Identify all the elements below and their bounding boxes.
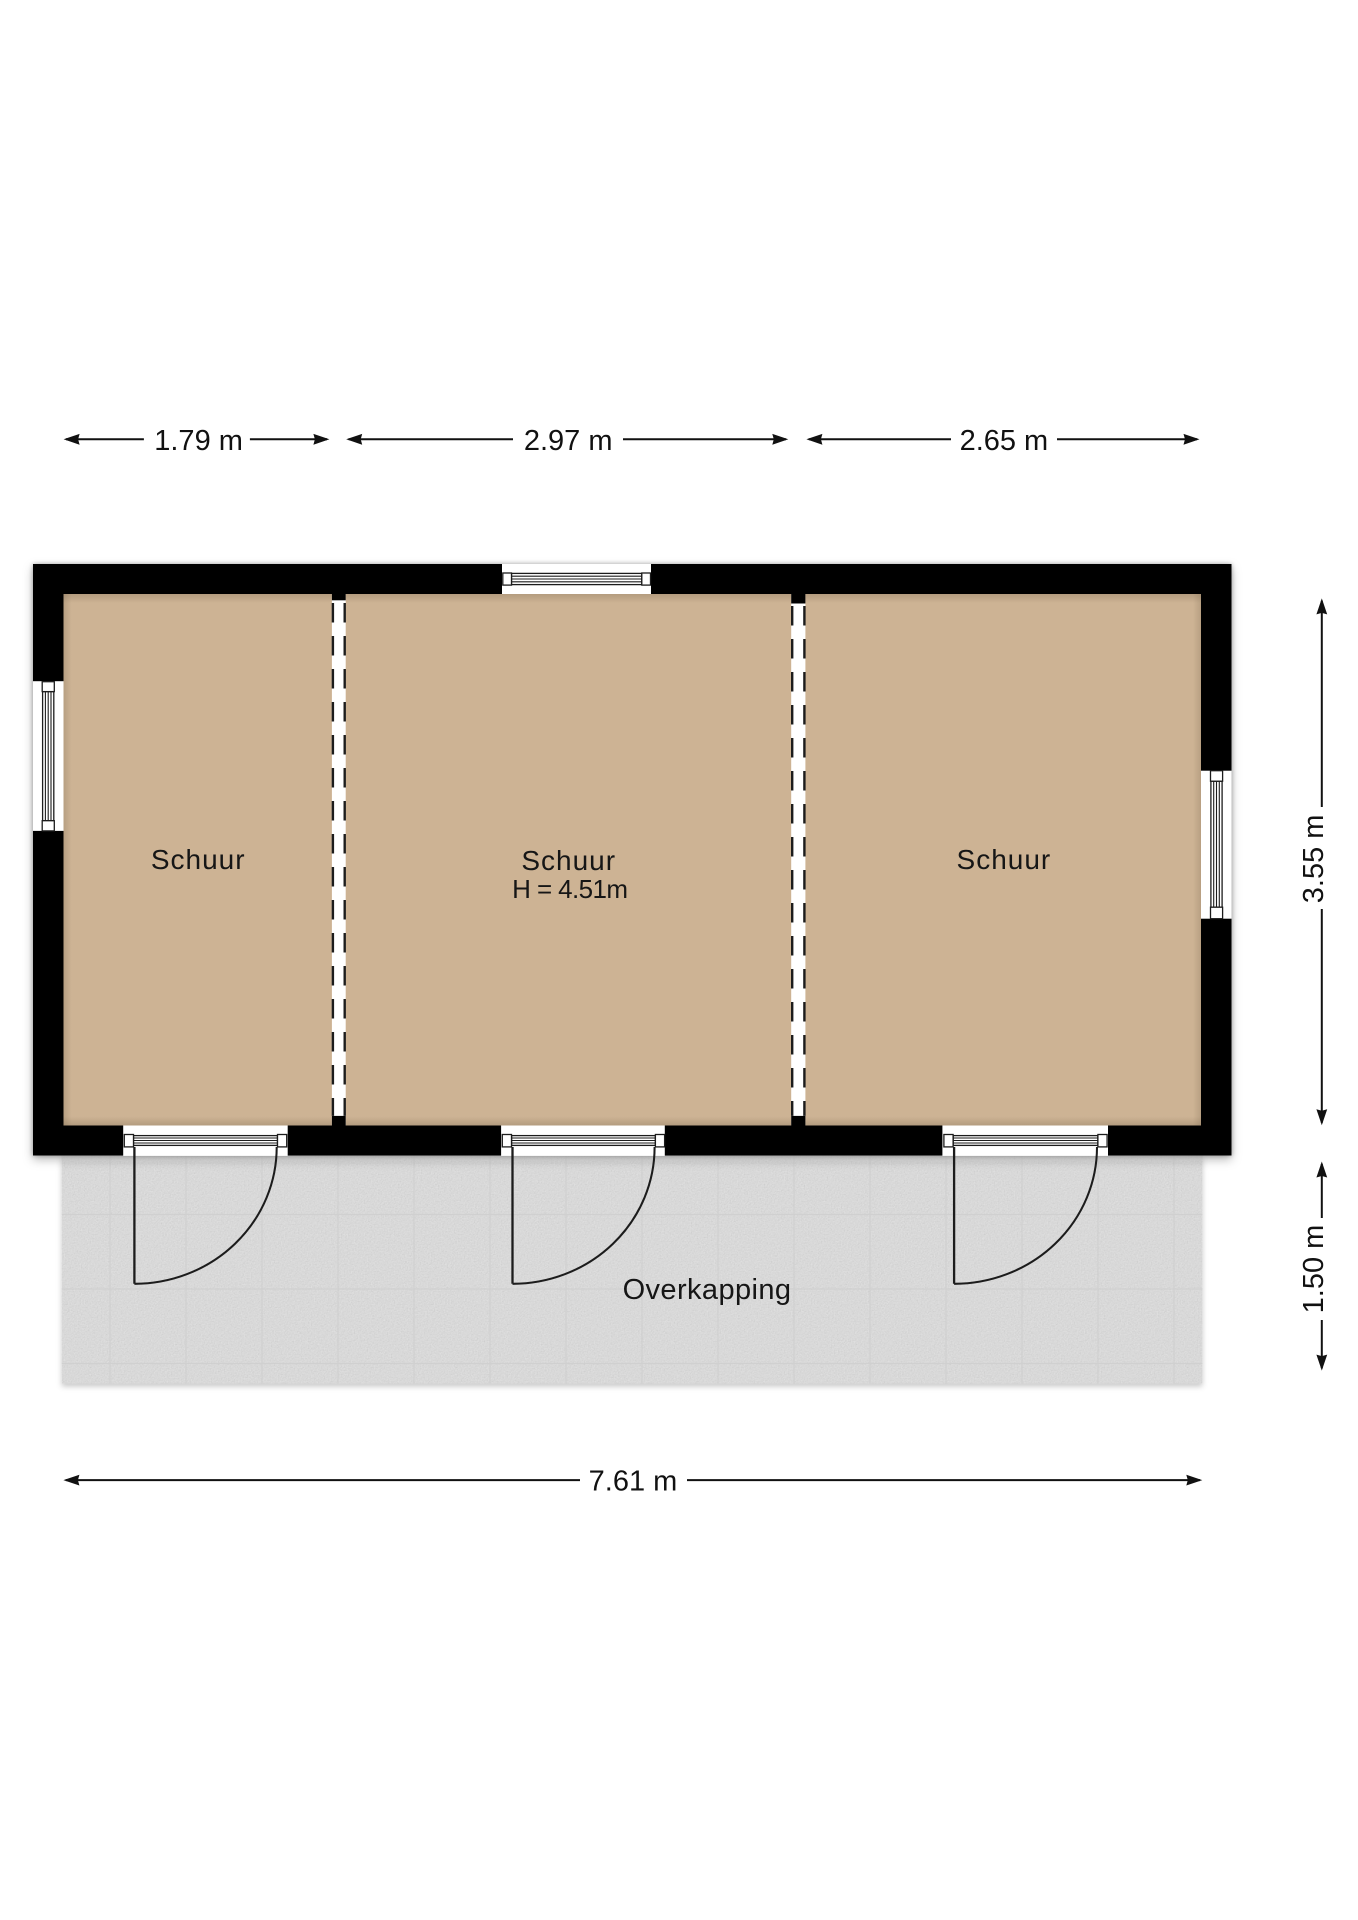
svg-text:H = 4.51m: H = 4.51m: [512, 874, 627, 904]
svg-text:Schuur: Schuur: [957, 844, 1052, 875]
svg-text:Schuur: Schuur: [521, 845, 616, 876]
svg-text:3.55 m: 3.55 m: [1298, 815, 1330, 904]
svg-text:Schuur: Schuur: [151, 844, 246, 875]
svg-text:2.65 m: 2.65 m: [960, 425, 1049, 457]
svg-text:7.61 m: 7.61 m: [589, 1466, 678, 1498]
svg-text:1.50 m: 1.50 m: [1298, 1225, 1330, 1314]
svg-text:Overkapping: Overkapping: [623, 1274, 792, 1306]
svg-text:2.97 m: 2.97 m: [524, 425, 613, 457]
svg-text:1.79 m: 1.79 m: [154, 425, 243, 457]
